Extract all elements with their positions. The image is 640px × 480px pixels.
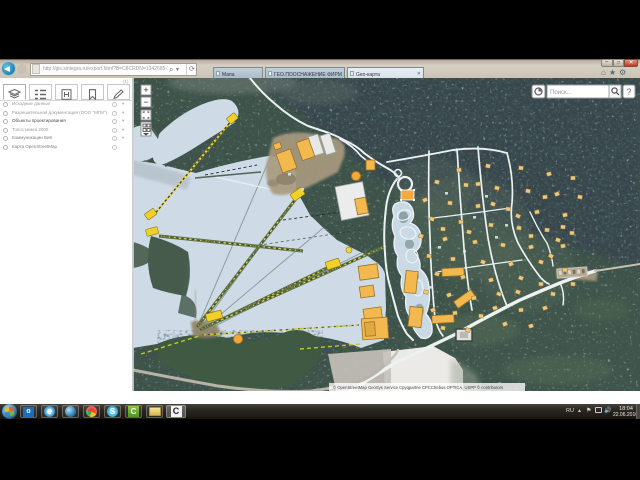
svg-text:Поиск...: Поиск... (550, 90, 572, 96)
svg-text:+: + (143, 85, 148, 95)
svg-text:?: ? (627, 88, 632, 97)
svg-text:−: − (143, 97, 148, 107)
svg-text:© OpenStreetMap GeoSys Service: © OpenStreetMap GeoSys Service Cpyqpartn… (333, 385, 503, 390)
